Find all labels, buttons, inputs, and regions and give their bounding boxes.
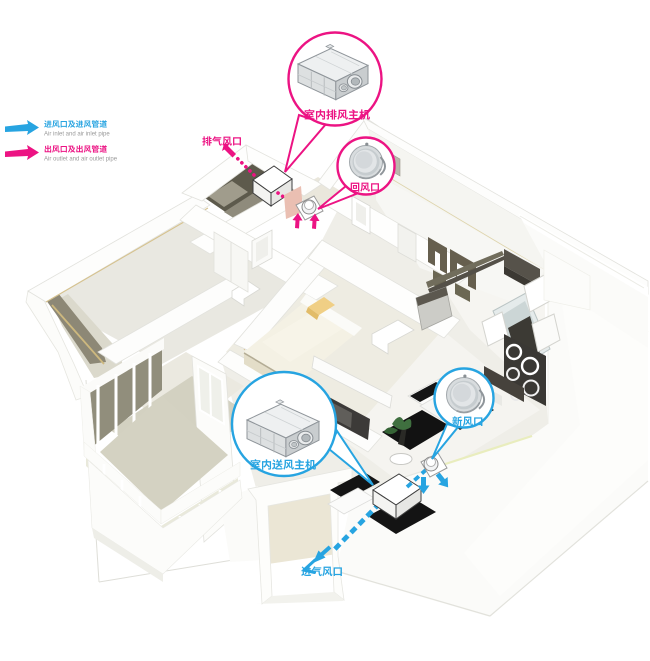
svg-text:Air inlet and air inlet pipe: Air inlet and air inlet pipe	[44, 132, 110, 138]
svg-text:Air outlet and air outlet pipe: Air outlet and air outlet pipe	[44, 157, 118, 163]
